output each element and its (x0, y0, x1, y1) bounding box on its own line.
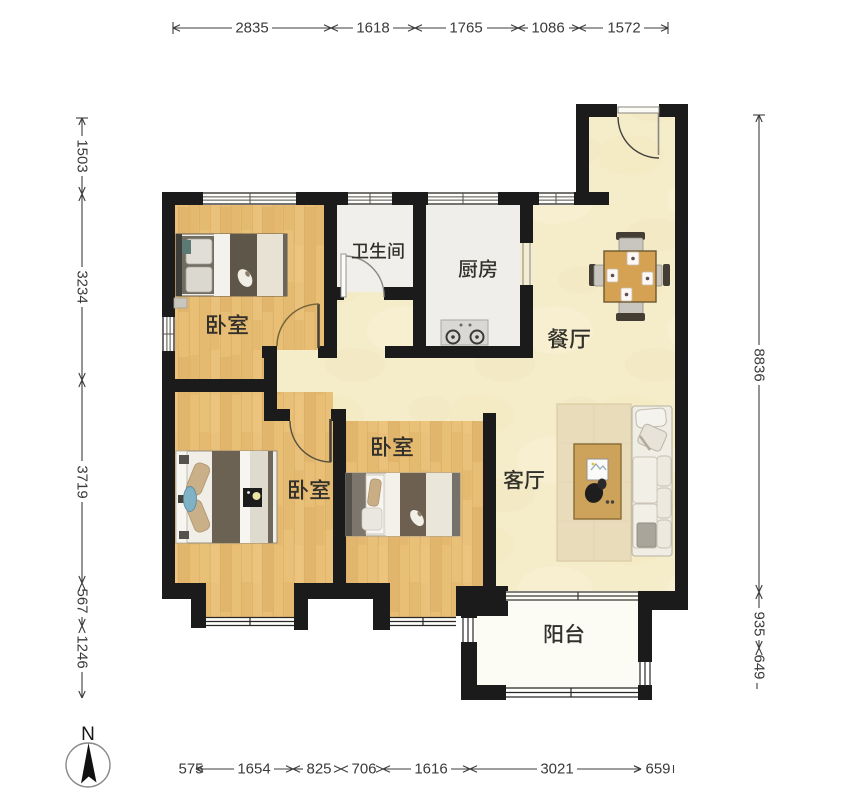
svg-text:3234: 3234 (74, 270, 91, 303)
svg-text:567: 567 (74, 588, 91, 613)
svg-text:1572: 1572 (607, 20, 640, 37)
svg-text:3719: 3719 (74, 465, 91, 498)
svg-text:N: N (81, 724, 95, 745)
svg-text:2835: 2835 (235, 20, 268, 37)
svg-text:1086: 1086 (531, 20, 564, 37)
svg-text:1503: 1503 (74, 139, 91, 172)
svg-text:706: 706 (351, 761, 376, 778)
svg-text:1618: 1618 (356, 20, 389, 37)
svg-text:1246: 1246 (74, 635, 91, 668)
svg-text:1765: 1765 (449, 20, 482, 37)
svg-text:825: 825 (306, 761, 331, 778)
svg-text:1654: 1654 (237, 761, 270, 778)
svg-text:1616: 1616 (414, 761, 447, 778)
svg-text:659: 659 (645, 761, 670, 778)
svg-text:8836: 8836 (751, 348, 768, 381)
svg-text:935: 935 (751, 611, 768, 636)
svg-text:3021: 3021 (540, 761, 573, 778)
svg-text:649: 649 (751, 654, 768, 679)
